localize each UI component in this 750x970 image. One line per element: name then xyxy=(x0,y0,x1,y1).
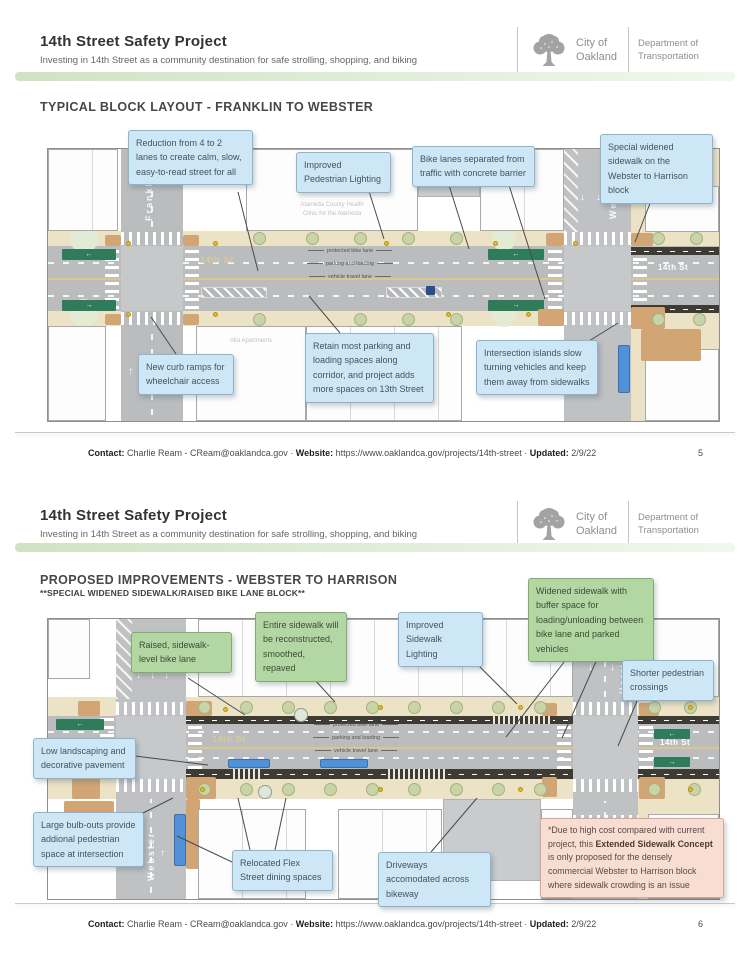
pedestrian-light-icon xyxy=(126,241,131,246)
callout-flex-street: Relocated Flex Street dining spaces xyxy=(232,850,333,891)
fourteenth-st-label: 14th St xyxy=(200,255,234,265)
curb-bulb xyxy=(183,314,199,325)
page-title: 14th Street Safety Project xyxy=(40,507,227,524)
building-label: Alameda County Health Clinic for the Ala… xyxy=(246,201,418,219)
tree-icon xyxy=(240,701,253,714)
page-number: 6 xyxy=(698,919,703,929)
pedestrian-light-icon xyxy=(518,787,523,792)
contact-label: Contact: xyxy=(88,919,125,929)
webster-median-hatch xyxy=(564,149,578,232)
building xyxy=(48,149,118,231)
driveway-crossing xyxy=(493,716,553,724)
fourteenth-st-label-right: 14th St xyxy=(660,738,690,747)
callout-parking: Retain most parking and loading spaces a… xyxy=(305,333,434,403)
callout-pedestrian-lighting: Improved Pedestrian Lighting xyxy=(296,152,391,193)
logo-divider-2 xyxy=(628,27,629,73)
tree-icon xyxy=(306,232,319,245)
tree-icon xyxy=(648,701,661,714)
callout-curb-ramps: New curb ramps for wheelchair access xyxy=(138,354,234,395)
pedestrian-light-icon xyxy=(378,787,383,792)
webster-median-hatch xyxy=(116,619,132,699)
lane-label-parking: parking and loading xyxy=(276,732,436,745)
website-value[interactable]: https://www.oaklandca.gov/projects/14th-… xyxy=(336,919,522,929)
raised-bike-lane xyxy=(631,247,719,255)
flex-street-dining xyxy=(174,814,186,866)
pedestrian-light-icon xyxy=(213,312,218,317)
logo-dept-text: Department of Transportation xyxy=(638,512,699,538)
parked-car xyxy=(618,345,630,393)
tree-icon xyxy=(402,313,415,326)
updated-value: 2/9/22 xyxy=(571,448,596,458)
tree-icon xyxy=(198,701,211,714)
callout-sidewalk-lighting: Improved Sidewalk Lighting xyxy=(398,612,483,667)
page-6: 14th Street Safety Project Investing in … xyxy=(0,485,750,970)
crosswalk xyxy=(116,779,186,792)
bike-rack-icon xyxy=(258,785,272,799)
website-value[interactable]: https://www.oaklandca.gov/projects/14th-… xyxy=(336,448,522,458)
callout-lane-reduction: Reduction from 4 to 2 lanes to create ca… xyxy=(128,130,253,185)
fourteenth-st-label: 14th St xyxy=(212,734,246,744)
updated-value: 2/9/22 xyxy=(571,919,596,929)
website-label: Website: xyxy=(296,448,333,458)
fourteenth-st-label-right: 14th St xyxy=(658,263,688,272)
lane-labels: protected bike lane parking and loading … xyxy=(270,245,430,284)
tree-icon xyxy=(492,783,505,796)
crosswalk xyxy=(633,248,647,309)
curb-bulb xyxy=(631,233,653,246)
webster-intersection xyxy=(564,246,631,311)
callout-bike-lanes: Bike lanes separated from traffic with c… xyxy=(412,146,535,187)
tree-icon xyxy=(648,783,661,796)
curb-bulb xyxy=(105,235,121,246)
callout-widened-sidewalk: Special widened sidewalk on the Webster … xyxy=(600,134,713,204)
callout-sidewalk-rebuilt: Entire sidewalk will be reconstructed, s… xyxy=(255,612,347,682)
callout-widened-buffer: Widened sidewalk with buffer space for l… xyxy=(528,578,654,662)
callout-landscaping: Low landscaping and decorative pavement xyxy=(33,738,136,779)
callout-driveways: Driveways accomodated across bikeway xyxy=(378,852,491,907)
bike-lane-box: ← xyxy=(56,719,104,730)
tree-icon xyxy=(690,232,703,245)
tree-icon xyxy=(253,313,266,326)
tree-icon xyxy=(408,783,421,796)
contact-value[interactable]: Charlie Ream - CReam@oaklandca.gov xyxy=(127,919,288,929)
franklin-intersection xyxy=(121,246,183,311)
building xyxy=(48,619,90,679)
tree-icon xyxy=(450,232,463,245)
bike-lane-box: → xyxy=(488,300,544,311)
lane-label-travel: vehicle travel lane xyxy=(276,745,436,758)
tree-icon xyxy=(282,783,295,796)
building xyxy=(48,326,106,421)
oakland-tree-logo-icon xyxy=(528,30,570,77)
pedestrian-light-icon xyxy=(446,312,451,317)
tree-icon xyxy=(450,313,463,326)
driveway-crossing xyxy=(388,769,448,779)
website-label: Website: xyxy=(296,919,333,929)
tree-icon xyxy=(324,701,337,714)
page-title: 14th Street Safety Project xyxy=(40,33,227,50)
curb-bulb xyxy=(183,235,199,246)
tree-icon xyxy=(693,313,706,326)
crosswalk xyxy=(116,702,186,715)
lane-labels: protected bike lane parking and loading … xyxy=(276,719,436,758)
parked-car xyxy=(228,759,270,768)
curb-bulb xyxy=(546,233,564,246)
callout-extended-sidewalk-note: *Due to high cost compared with current … xyxy=(540,818,724,898)
logo-divider-2 xyxy=(628,501,629,547)
crosswalk xyxy=(573,702,638,715)
lane-label-travel: vehicle travel lane xyxy=(270,271,430,284)
lane-label-bike: protected bike lane xyxy=(276,719,436,732)
pedestrian-light-icon xyxy=(213,241,218,246)
tree-icon xyxy=(652,232,665,245)
callout-raised-bike-lane: Raised, sidewalk-level bike lane xyxy=(131,632,232,673)
pedestrian-light-icon xyxy=(526,312,531,317)
pedestrian-light-icon xyxy=(688,705,693,710)
pedestrian-light-icon xyxy=(200,787,205,792)
lane-arrow-icon: ↑ xyxy=(160,849,165,859)
callout-bulb-outs: Large bulb-outs provide addional pedestr… xyxy=(33,812,144,867)
parked-car xyxy=(426,286,435,295)
tree-icon xyxy=(450,701,463,714)
page-number: 5 xyxy=(698,448,703,458)
updated-label: Updated: xyxy=(530,919,569,929)
logo-city-text: City of Oakland xyxy=(576,36,617,65)
contact-label: Contact: xyxy=(88,448,125,458)
tree-icon xyxy=(450,783,463,796)
tree-icon xyxy=(282,701,295,714)
callout-shorter-crossings: Shorter pedestrian crossings xyxy=(622,660,714,701)
section-title: TYPICAL BLOCK LAYOUT - FRANKLIN TO WEBST… xyxy=(40,100,373,114)
footer-divider xyxy=(15,432,735,433)
tree-icon xyxy=(492,701,505,714)
building-label: Alta Apartments xyxy=(196,337,306,346)
webster-street-label: Webster xyxy=(146,832,156,881)
page-5: 14th Street Safety Project Investing in … xyxy=(0,0,750,485)
logo-city-text: City of Oakland xyxy=(576,510,617,539)
bike-lane-box: → xyxy=(654,757,690,767)
driveway-crossing xyxy=(233,769,263,779)
crosswalk xyxy=(185,248,199,309)
loading-zone-hatch xyxy=(201,287,267,298)
tree-icon xyxy=(324,783,337,796)
pedestrian-light-icon xyxy=(518,705,523,710)
tree-icon xyxy=(534,783,547,796)
section-subtitle: **SPECIAL WIDENED SIDEWALK/RAISED BIKE L… xyxy=(40,588,305,598)
page-subtitle: Investing in 14th Street as a community … xyxy=(40,529,417,540)
header-accent-bar xyxy=(15,543,735,552)
bike-lane-box: ← xyxy=(488,249,544,260)
footer-text: Contact: Charlie Ream - CReam@oaklandca.… xyxy=(88,448,596,458)
footer-text: Contact: Charlie Ream - CReam@oaklandca.… xyxy=(88,919,596,929)
tree-icon xyxy=(253,232,266,245)
pedestrian-light-icon xyxy=(378,705,383,710)
updated-label: Updated: xyxy=(530,448,569,458)
tree-icon xyxy=(354,313,367,326)
curb-bulb xyxy=(78,701,100,716)
footer-divider xyxy=(15,903,735,904)
lane-arrow-icon: ↓ xyxy=(580,193,585,203)
logo-divider xyxy=(517,27,518,73)
curb-bulb xyxy=(105,314,121,325)
pedestrian-light-icon xyxy=(573,241,578,246)
pedestrian-light-icon xyxy=(493,241,498,246)
curb-bulb xyxy=(538,309,564,326)
lane-arrow-icon: ↓ xyxy=(610,663,615,673)
header-accent-bar xyxy=(15,72,735,81)
logo-dept-text: Department of Transportation xyxy=(638,38,699,64)
page-subtitle: Investing in 14th Street as a community … xyxy=(40,55,417,66)
callout-intersection-islands: Intersection islands slow turning vehicl… xyxy=(476,340,598,395)
crosswalk xyxy=(573,779,638,792)
lane-label-bike: protected bike lane xyxy=(270,245,430,258)
logo-divider xyxy=(517,501,518,547)
tree-icon xyxy=(408,701,421,714)
pedestrian-light-icon xyxy=(223,707,228,712)
tree-icon xyxy=(534,701,547,714)
tree-icon xyxy=(652,313,665,326)
harrison-intersection xyxy=(573,716,638,779)
bike-lane-box: → xyxy=(62,300,116,311)
curb-bulb xyxy=(72,777,100,799)
sidewalk-plaza xyxy=(641,329,701,361)
pedestrian-light-icon xyxy=(126,312,131,317)
lane-arrow-icon: ↑ xyxy=(128,367,133,377)
pedestrian-light-icon xyxy=(688,787,693,792)
crosswalk xyxy=(564,312,631,325)
crosswalk xyxy=(548,248,562,309)
raised-bike-lane xyxy=(638,716,719,724)
contact-value[interactable]: Charlie Ream - CReam@oaklandca.gov xyxy=(127,448,288,458)
tree-icon xyxy=(354,232,367,245)
lane-label-parking: parking and loading xyxy=(270,258,430,271)
bike-lane-box: ← xyxy=(62,249,116,260)
lane-arrow-icon: ↓ xyxy=(588,663,593,673)
parked-car xyxy=(320,759,368,768)
tree-icon xyxy=(240,783,253,796)
flyer-canvas: 14th Street Safety Project Investing in … xyxy=(0,0,750,970)
tree-icon xyxy=(402,232,415,245)
section-title: PROPOSED IMPROVEMENTS - WEBSTER TO HARRI… xyxy=(40,573,397,587)
